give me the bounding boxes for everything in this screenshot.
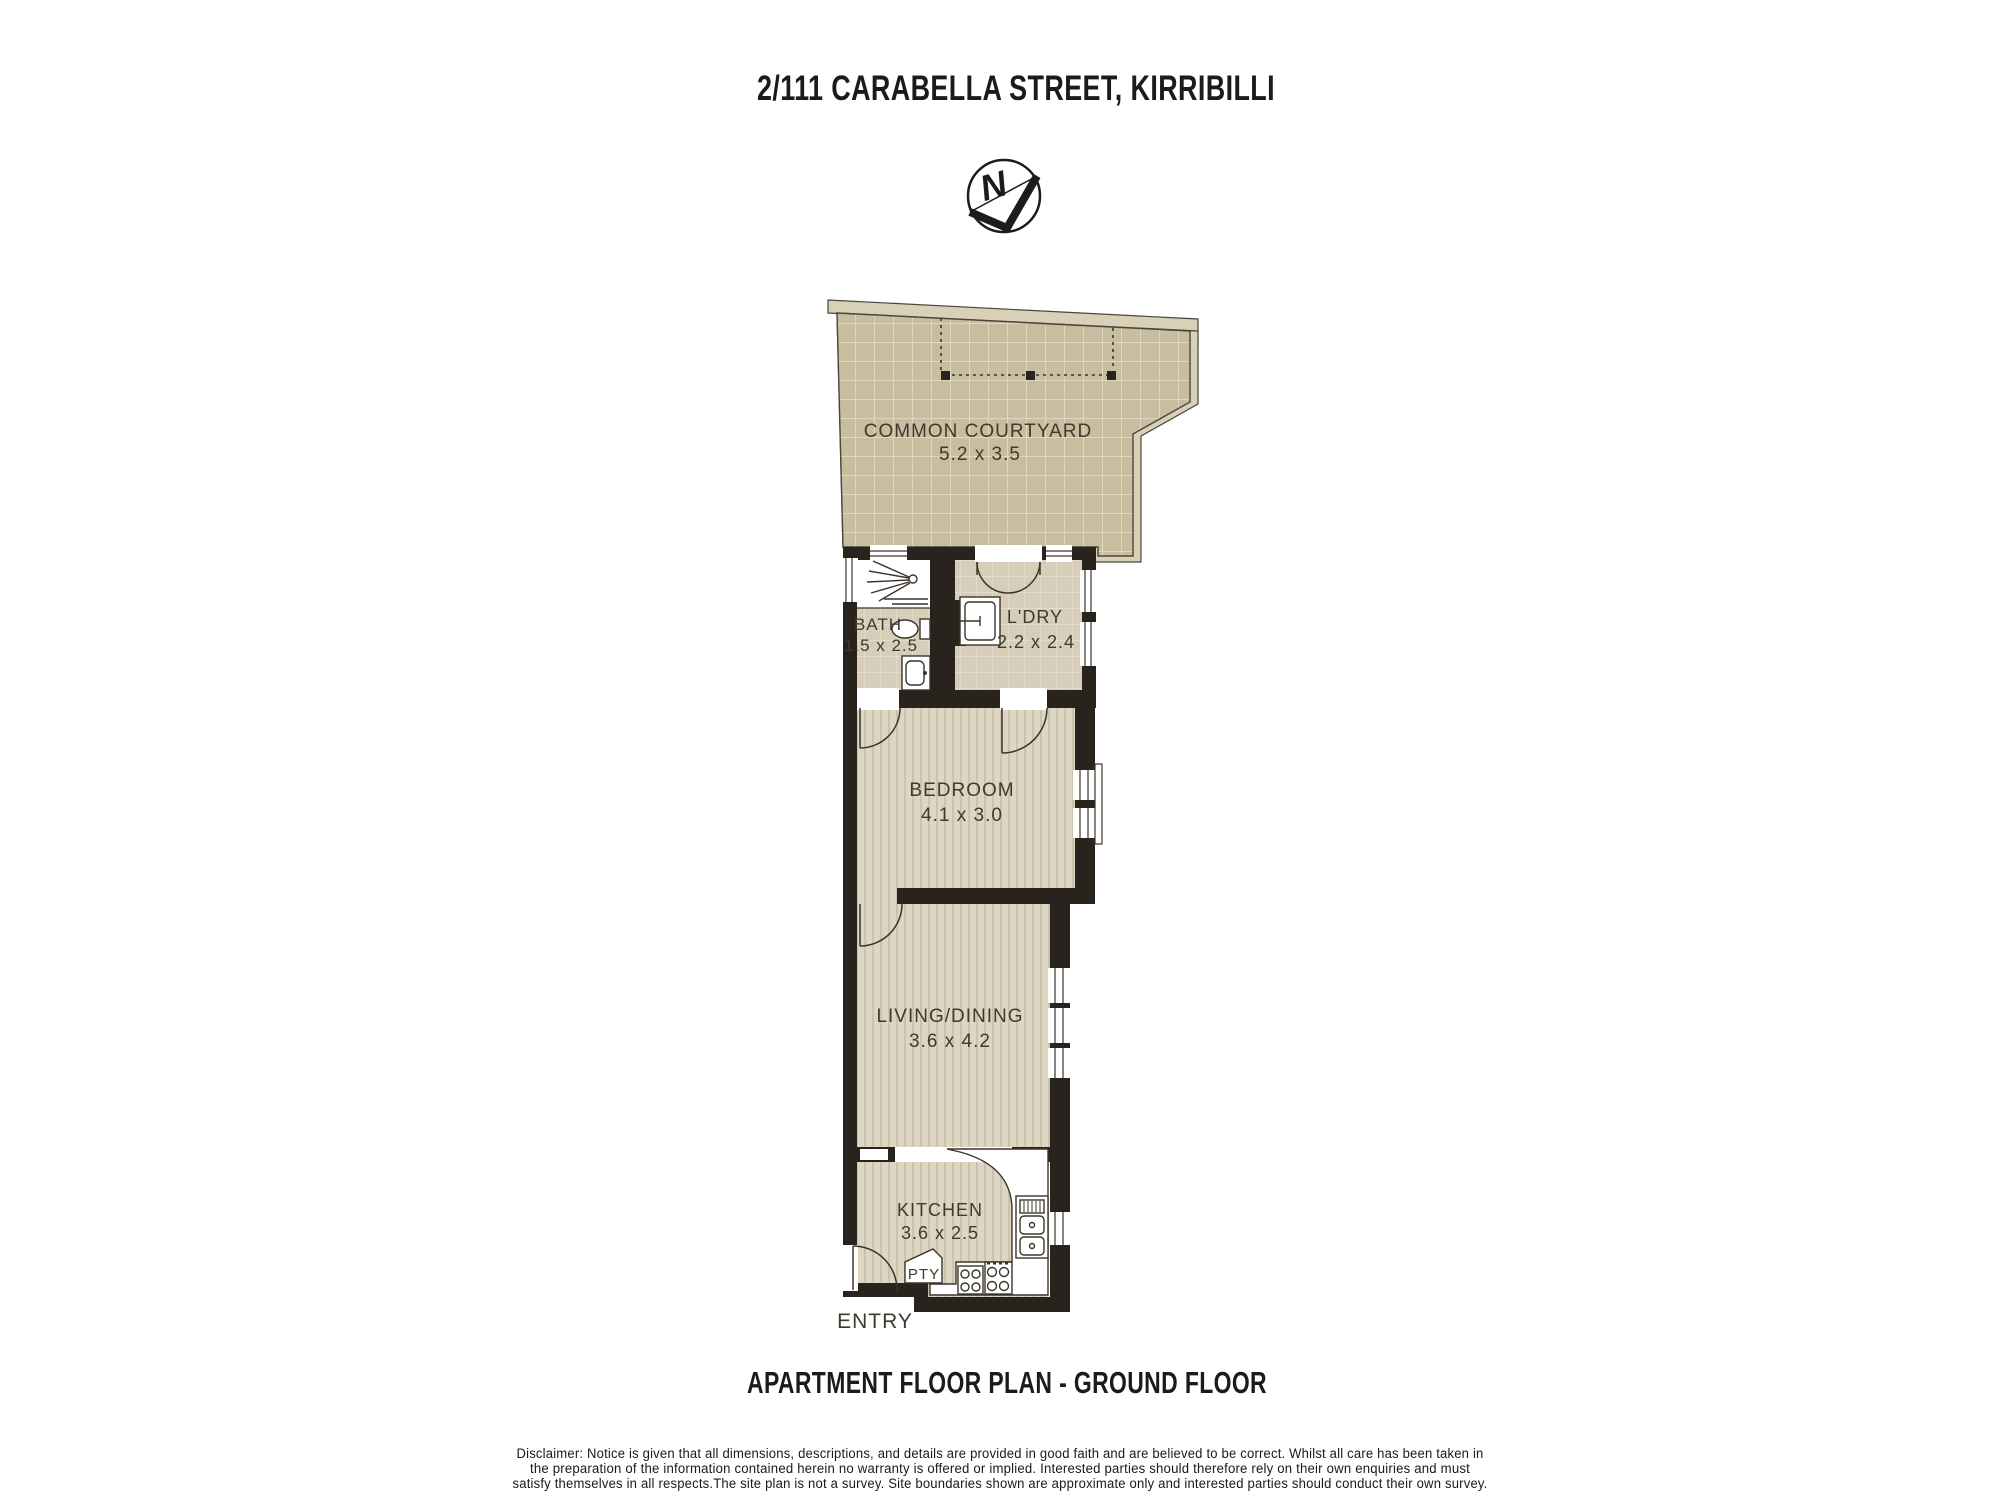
living-label: LIVING/DINING xyxy=(876,1006,1023,1027)
wall-living-right-b xyxy=(1050,1003,1070,1008)
window-living-1 xyxy=(1048,968,1072,1003)
courtyard-label: COMMON COURTYARD xyxy=(864,421,1093,442)
window-laundry-right-1 xyxy=(1080,570,1097,612)
bath-label: BATH xyxy=(854,615,902,634)
window-living-3 xyxy=(1048,1048,1072,1078)
kitchen-dims: 3.6 x 2.5 xyxy=(901,1223,979,1243)
window-top-right xyxy=(1046,545,1072,562)
page-title: 2/111 CARABELLA STREET, KIRRIBILLI xyxy=(757,69,1275,108)
entry-label: ENTRY xyxy=(837,1310,913,1333)
laundry-dims: 2.2 x 2.4 xyxy=(997,632,1075,652)
wall-bedroom-right-b xyxy=(1075,800,1095,808)
window-shower-top xyxy=(870,545,907,562)
wall-bedroom-right-a xyxy=(1075,708,1095,770)
disclaimer: Disclaimer: Notice is given that all dim… xyxy=(513,1446,1488,1491)
floor-plan-page: 2/111 CARABELLA STREET, KIRRIBILLI N xyxy=(0,0,2000,1500)
vanity-basin-icon xyxy=(902,656,930,690)
wall-bottom-right xyxy=(925,1297,1070,1312)
pantry-label: PTY xyxy=(908,1266,940,1283)
wall-laundry-right-b xyxy=(1082,612,1096,622)
living-dims: 3.6 x 4.2 xyxy=(909,1031,991,1052)
laundry-tub-icon xyxy=(960,597,1000,645)
footer-title: APARTMENT FLOOR PLAN - GROUND FLOOR xyxy=(747,1365,1267,1400)
wall-living-right-c xyxy=(1050,1043,1070,1048)
bedroom-dims: 4.1 x 3.0 xyxy=(921,805,1003,826)
wall-living-right-d xyxy=(1050,1078,1070,1212)
window-laundry-right-2 xyxy=(1080,622,1097,666)
window-kitchen xyxy=(1048,1212,1072,1245)
stove-icon xyxy=(958,1262,1012,1294)
kitchen-divider-gap xyxy=(860,1149,888,1160)
wall-bath-laundry xyxy=(930,547,955,692)
door-gap-laundry-bedroom xyxy=(1000,688,1047,710)
wall-left xyxy=(843,547,857,1297)
window-bath-left xyxy=(841,558,858,602)
laundry-label: L'DRY xyxy=(1007,607,1063,627)
bath-dims: 1.5 x 2.5 xyxy=(844,636,918,655)
door-gap-bath-bedroom xyxy=(857,688,899,710)
wall-laundry-right-c xyxy=(1082,666,1096,708)
courtyard-dims: 5.2 x 3.5 xyxy=(939,444,1021,465)
window-bedroom-1 xyxy=(1073,770,1097,800)
kitchen-sink-icon xyxy=(1016,1196,1048,1258)
disclaimer-line-1: Disclaimer: Notice is given that all dim… xyxy=(517,1446,1484,1461)
window-bedroom-sill xyxy=(1095,764,1102,844)
kitchen-label: KITCHEN xyxy=(897,1200,983,1220)
bedroom-label: BEDROOM xyxy=(909,780,1014,801)
entry-door-gap xyxy=(841,1245,858,1291)
north-compass: N xyxy=(968,160,1040,232)
disclaimer-line-3: satisfy themselves in all respects.The s… xyxy=(513,1476,1488,1491)
wall-living-right-a xyxy=(1050,904,1070,968)
wall-laundry-right-a xyxy=(1082,547,1096,570)
door-gap-laundry-courtyard xyxy=(975,545,1042,562)
bedroom-living-opening xyxy=(857,888,897,904)
window-living-2 xyxy=(1048,1008,1072,1043)
wall-bedroom-bottom xyxy=(897,888,1095,904)
window-bedroom-2 xyxy=(1073,808,1097,838)
shower-area xyxy=(857,560,930,608)
disclaimer-line-2: the preparation of the information conta… xyxy=(530,1461,1470,1476)
floor-plan-svg: 2/111 CARABELLA STREET, KIRRIBILLI N xyxy=(0,0,2000,1500)
